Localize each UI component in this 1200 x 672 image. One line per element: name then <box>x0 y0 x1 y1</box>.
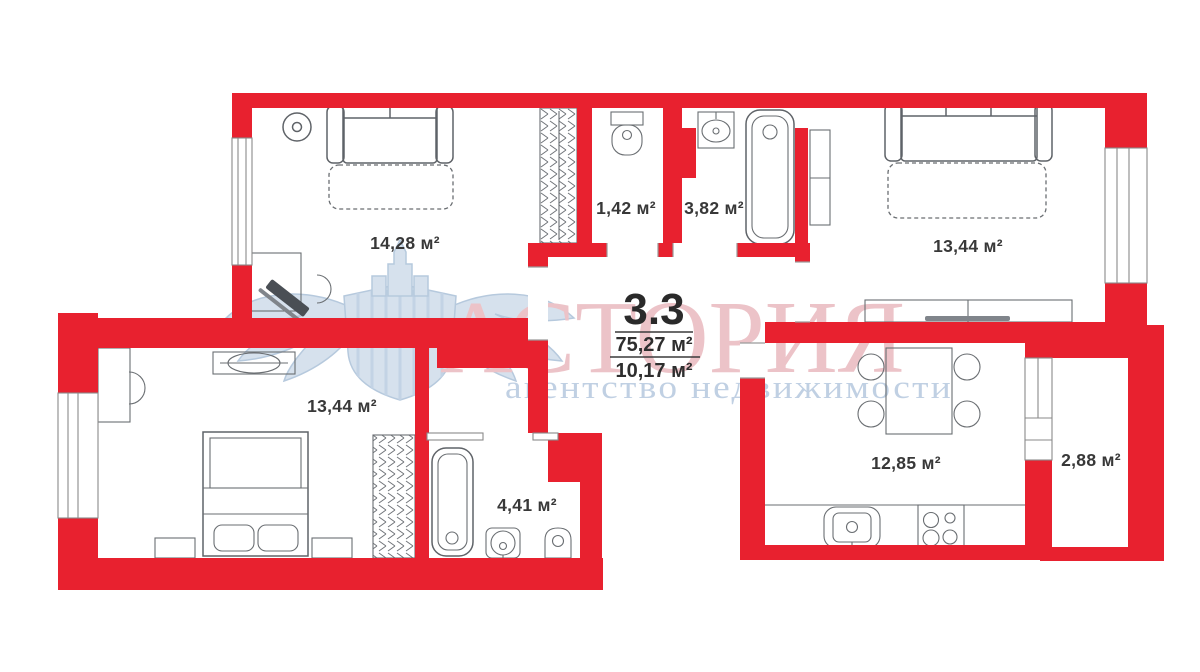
wardrobe-icon <box>373 435 415 558</box>
window <box>232 138 252 265</box>
sink-icon <box>698 112 734 148</box>
sink-icon <box>824 507 880 550</box>
bathroom-fixtures <box>698 110 794 244</box>
bathtub-icon <box>432 448 473 556</box>
wardrobe-icon <box>540 108 577 243</box>
room-label-balcony: 2,88 м² <box>1061 450 1121 470</box>
room-label-bedroom-right: 13,44 м² <box>933 236 1003 256</box>
speaker-icon <box>283 113 311 141</box>
room-label-kitchen: 12,85 м² <box>871 453 941 473</box>
bed-icon <box>203 432 308 556</box>
desk-icon <box>98 348 145 422</box>
room-label-wc: 1,42 м² <box>596 198 656 218</box>
sofa-icon <box>327 101 453 209</box>
stove-icon <box>918 505 964 548</box>
door-opening <box>740 343 765 378</box>
sink-icon <box>486 528 520 562</box>
nightstand-icon <box>155 538 195 558</box>
floor-plan: АСТОРИЯ агентство недвижимости <box>0 0 1200 672</box>
door-opening <box>795 262 810 322</box>
chair-icon <box>954 354 980 380</box>
balcony-door-icon <box>1025 358 1052 460</box>
window <box>1105 148 1147 283</box>
bathtub-icon <box>746 110 794 244</box>
unit-number: 3.3 <box>623 285 684 334</box>
room-label-shower: 4,41 м² <box>497 495 557 515</box>
door-opening <box>607 243 658 257</box>
unit-total-area: 75,27 м² <box>615 334 692 356</box>
nightstand-icon <box>312 538 352 558</box>
room-label-bedroom-left: 13,44 м² <box>307 396 377 416</box>
room-label-bathroom: 3,82 м² <box>684 198 744 218</box>
door-opening <box>528 267 548 340</box>
chair-icon <box>954 401 980 427</box>
sofa-icon <box>885 99 1052 218</box>
door-opening <box>673 243 737 257</box>
cabinet-icon <box>810 130 830 225</box>
window <box>58 393 98 518</box>
room-label-living: 14,28 м² <box>370 233 440 253</box>
unit-secondary-area: 10,17 м² <box>615 360 692 382</box>
speaker-icon <box>293 123 302 132</box>
partition-wall <box>427 433 558 440</box>
toilet-icon <box>611 112 643 155</box>
toilet-icon <box>545 528 571 558</box>
